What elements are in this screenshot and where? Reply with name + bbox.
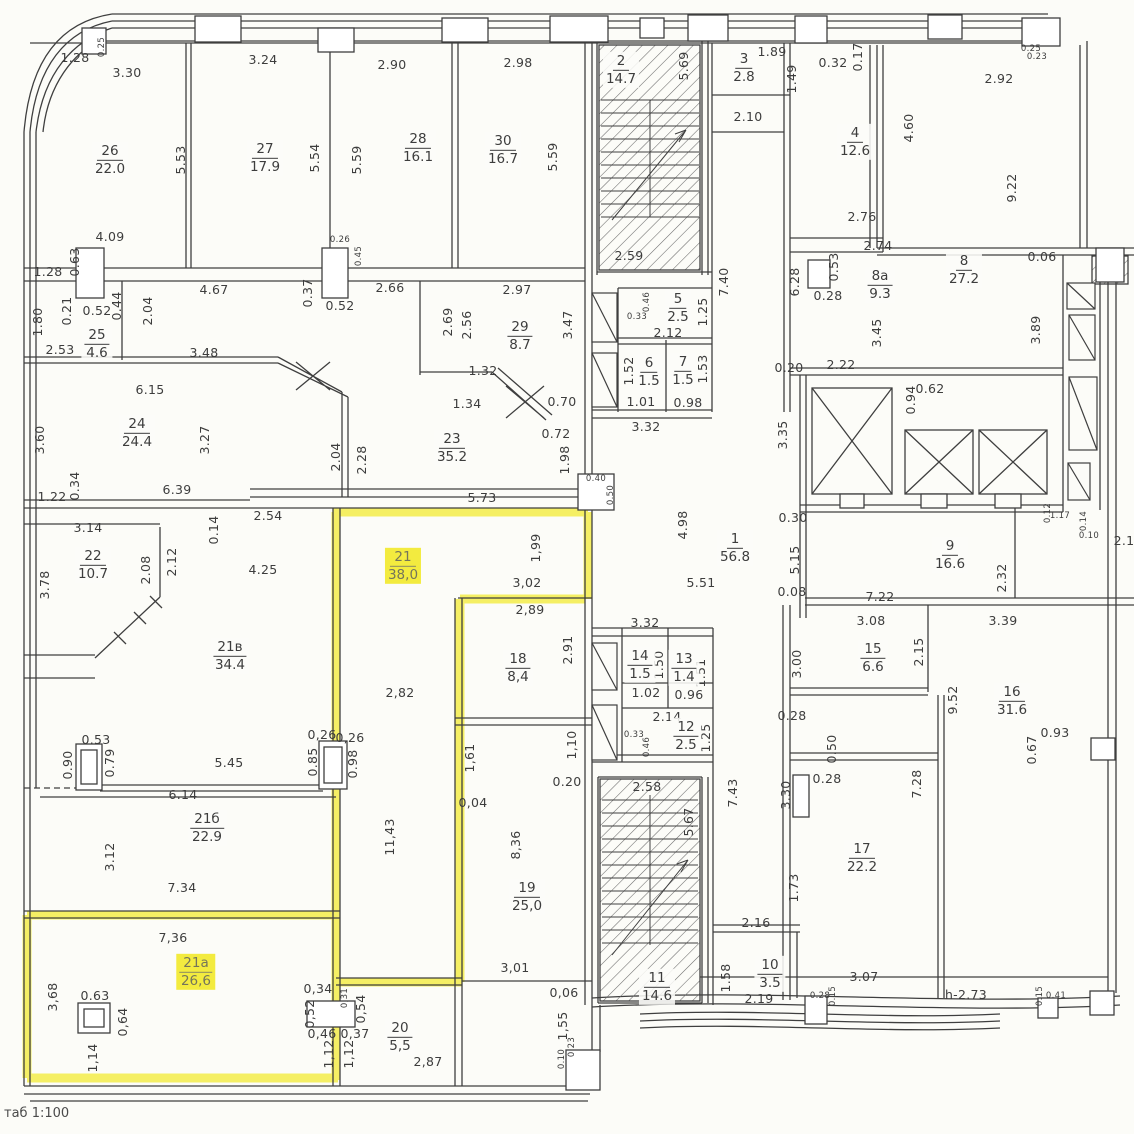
room-label-3: 32.8 [730,50,757,86]
dimension-label: 1,99 [530,533,543,562]
dimension-label: 3.08 [856,615,885,628]
dimension-label: 9.22 [1006,173,1019,202]
room-number: 21в [213,639,246,657]
dimension-label: 0,26 [335,732,364,745]
dimension-label: 0.10 [1079,532,1099,541]
dimension-label: 0.33 [627,313,647,322]
room-label-15: 156.6 [857,640,888,676]
room-number: 24 [124,416,149,434]
dimension-label: 0.21 [61,296,74,325]
dimension-label: 3.47 [562,310,575,339]
dimension-label: 0.14 [1080,511,1089,531]
dimension-label: 0.98 [673,397,702,410]
room-label-28: 2816.1 [400,130,436,166]
room-label-12: 122.5 [670,718,701,754]
room-label-7: 71.5 [669,353,696,389]
dimension-label: 1.53 [697,354,710,383]
dimension-label: 2.98 [503,57,532,70]
room-area: 31.6 [997,702,1027,718]
room-area: 22.9 [192,829,222,845]
dimension-label: 3.89 [1030,315,1043,344]
room-number: 26 [97,143,122,161]
room-label-21а: 21а26,6 [176,954,215,990]
dimension-label: 0.96 [674,689,703,702]
dimension-label: 0.93 [1040,727,1069,740]
dimension-label: 4.67 [199,284,228,297]
room-label-8: 827.2 [946,252,982,288]
room-area: 14.7 [606,71,636,87]
dimension-label: 1.34 [452,398,481,411]
room-number: 25 [84,327,109,345]
dimension-label: 1.98 [559,445,572,474]
dimension-label: 0.53 [828,252,841,281]
dimension-label: 1.58 [720,963,733,992]
room-area: 16.1 [403,149,433,165]
room-area: 27.2 [949,271,979,287]
dimension-label: 9.52 [947,685,960,714]
room-label-16: 1631.6 [994,683,1030,719]
label-layer: 1.280.253.303.242.902.985.535.545.595.59… [0,0,1134,1134]
dimension-label: 3.32 [630,617,659,630]
dimension-label: 0.72 [541,428,570,441]
dimension-label: 1.49 [786,64,799,93]
dimension-label: 2.08 [140,555,153,584]
dimension-label: 0.17 [852,42,865,71]
dimension-label: 2.66 [375,282,404,295]
room-label-2: 214.7 [603,52,639,88]
dimension-label: 2.92 [984,73,1013,86]
dimension-label: 0.52 [82,305,111,318]
room-label-19: 1925,0 [509,879,545,915]
room-area: 14.6 [642,988,672,1004]
dimension-label: 1.17 [1050,512,1070,521]
dimension-label: 1.52 [623,356,636,385]
dimension-label: 0.23 [568,1037,577,1057]
room-label-27: 2717.9 [247,140,283,176]
dimension-label: 2.10 [733,111,762,124]
room-area: 1.5 [672,372,693,388]
room-label-29: 298.7 [504,318,535,354]
room-label-11: 1114.6 [639,969,675,1005]
dimension-label: 0,46 [307,1028,336,1041]
room-number: 21б [190,811,224,829]
dimension-label: 1,10 [566,730,579,759]
dimension-label: 0.25 [98,37,107,57]
dimension-label: 0.52 [325,300,354,313]
dimension-label: 3.24 [248,54,277,67]
room-area: 10.7 [78,566,108,582]
room-label-1: 156.8 [717,530,753,566]
room-area: 6.6 [862,659,883,675]
dimension-label: 5.69 [678,51,691,80]
room-area: 22.2 [847,859,877,875]
room-number: 1 [727,531,744,549]
dimension-label: 3.30 [112,67,141,80]
dimension-label: 1.22 [37,491,66,504]
dimension-label: 0.28 [812,773,841,786]
dimension-label: 1.28 [60,52,89,65]
dimension-label: 0,06 [549,987,578,1000]
dimension-label: 0.67 [1026,735,1039,764]
room-area: 8.7 [509,337,530,353]
room-label-14: 141.5 [624,647,655,683]
dimension-label: 5.51 [686,577,715,590]
room-number: 16 [999,684,1024,702]
dimension-label: 3.32 [631,421,660,434]
dimension-label: 5.54 [309,143,322,172]
dimension-label: 0.06 [1027,251,1056,264]
dimension-label: 8,36 [510,830,523,859]
room-label-20: 205,5 [384,1019,415,1055]
room-number: 3 [736,51,753,69]
dimension-label: 3.45 [871,318,884,347]
room-label-26: 2622.0 [92,142,128,178]
dimension-label: 6.15 [135,384,164,397]
room-number: 4 [847,125,864,143]
dimension-label: 5.73 [467,492,496,505]
dimension-label: 3.14 [73,522,102,535]
dimension-label: 0.53 [81,734,110,747]
dimension-label: 2.1 [1114,535,1134,548]
dimension-label: 0.20 [774,362,803,375]
dimension-label: 0.94 [905,385,918,414]
dimension-label: 5.15 [789,545,802,574]
room-label-30: 3016.7 [485,132,521,168]
dimension-label: 6.39 [162,484,191,497]
dimension-label: 3,02 [512,577,541,590]
dimension-label: 7.43 [727,778,740,807]
floor-plan-page: 1.280.253.303.242.902.985.535.545.595.59… [0,0,1134,1134]
dimension-label: 0,04 [458,797,487,810]
room-area: 8,4 [507,669,528,685]
room-area: 9.3 [869,286,890,302]
dimension-label: 2.59 [614,250,643,263]
dimension-label: 0.30 [778,512,807,525]
dimension-label: 2,87 [413,1056,442,1069]
dimension-label: 3.48 [189,347,218,360]
dimension-label: 3,68 [47,982,60,1011]
room-area: 16.6 [935,556,965,572]
dimension-label: 3.27 [199,425,212,454]
dimension-label: 2,82 [385,687,414,700]
room-area: 3.5 [759,975,780,991]
dimension-label: 2.16 [741,917,770,930]
room-label-17: 1722.2 [844,840,880,876]
dimension-label: 0,52 [304,999,317,1028]
dimension-label: 2.28 [356,445,369,474]
dimension-label: 2.04 [330,442,343,471]
dimension-label: 3.30 [780,780,793,809]
dimension-label: 2.69 [442,307,455,336]
room-area: 26,6 [181,973,211,989]
room-label-21: 2138,0 [385,548,421,584]
dimension-label: 2.15 [913,637,926,666]
room-label-13: 131.4 [668,650,699,686]
dimension-label: 7.34 [167,882,196,895]
dimension-label: 0.40 [586,475,606,484]
dimension-label: 1.25 [697,297,710,326]
room-number: 27 [252,141,277,159]
room-number: 6 [641,355,658,373]
dimension-label: 3.60 [34,425,47,454]
room-label-22: 2210.7 [75,547,111,583]
room-number: 30 [490,133,515,151]
dimension-label: 2.04 [142,296,155,325]
dimension-label: 3.78 [39,570,52,599]
dimension-label: 2.53 [45,344,74,357]
dimension-label: 2.19 [744,993,773,1006]
dimension-label: 0.26 [330,236,350,245]
dimension-label: 0.28 [813,290,842,303]
room-label-8а: 8а9.3 [865,267,896,303]
dimension-label: 0.70 [547,396,576,409]
room-number: 8а [868,268,893,286]
room-number: 29 [507,319,532,337]
dimension-label: 2.56 [461,310,474,339]
room-area: 1.5 [629,666,650,682]
dimension-label: 5.53 [175,145,188,174]
room-number: 22 [80,548,105,566]
dimension-label: 7.22 [865,591,894,604]
dimension-label: 0.20 [552,776,581,789]
dimension-label: 2.12 [166,547,179,576]
room-area: 38,0 [388,567,418,583]
room-number: 19 [514,880,539,898]
dimension-label: 2.12 [653,327,682,340]
room-area: 1.5 [638,373,659,389]
dimension-label: 1.80 [32,307,45,336]
dimension-label: 1.73 [788,873,801,902]
dimension-label: 4.09 [95,231,124,244]
dimension-label: 6.14 [168,789,197,802]
dimension-label: 2.90 [377,59,406,72]
dimension-label: 0.50 [607,485,616,505]
room-number: 9 [942,538,959,556]
dimension-label: 4.60 [903,113,916,142]
dimension-label: 0.45 [355,246,364,266]
room-label-5: 52.5 [664,290,691,326]
dimension-label: 0.44 [111,291,124,320]
room-area: 2.5 [675,737,696,753]
dimension-label: 1,61 [464,743,477,772]
room-number: 12 [673,719,698,737]
room-number: 8 [956,253,973,271]
room-label-6: 61.5 [635,354,662,390]
dimension-label: 0.23 [1027,53,1047,62]
dimension-label: 2.22 [826,359,855,372]
dimension-label: 1.32 [468,365,497,378]
dimension-label: 0.15 [1036,986,1045,1006]
dimension-label: 0.37 [302,278,315,307]
dimension-label: 4.25 [248,564,277,577]
dimension-label: 7.28 [911,769,924,798]
dimension-label: 0.10 [558,1049,567,1069]
room-number: 7 [675,354,692,372]
room-area: 1.4 [673,669,694,685]
dimension-label: 5.59 [351,145,364,174]
dimension-label: 0.34 [69,471,82,500]
dimension-label: 0.28 [777,710,806,723]
dimension-label: 11,43 [384,818,397,855]
dimension-label: 0,54 [355,994,368,1023]
dimension-label: 2.32 [996,563,1009,592]
dimension-label: 2.97 [502,284,531,297]
room-area: 5,5 [389,1038,410,1054]
room-area: 22.0 [95,161,125,177]
dimension-label: 1.28 [33,266,62,279]
room-area: 17.9 [250,159,280,175]
dimension-label: 2.54 [253,510,282,523]
dimension-label: 2.91 [562,635,575,664]
dimension-label: 0.08 [777,586,806,599]
room-number: 15 [860,641,885,659]
room-number: 5 [670,291,687,309]
dimension-label: 4.98 [677,510,690,539]
room-area: 25,0 [512,898,542,914]
dimension-label: 2.76 [847,211,876,224]
dimension-label: 0,26 [307,729,336,742]
dimension-label: 7,36 [158,932,187,945]
dimension-label: 0.79 [104,748,117,777]
dimension-label: 5.67 [683,807,696,836]
room-number: 23 [439,431,464,449]
room-number: 13 [671,651,696,669]
room-number: 28 [405,131,430,149]
dimension-label: 0.85 [307,747,320,776]
dimension-label: 0,64 [117,1007,130,1036]
dimension-label: 0.14 [208,515,221,544]
room-area: 35.2 [437,449,467,465]
room-area: 12.6 [840,143,870,159]
dimension-label: 7.40 [718,267,731,296]
dimension-label: 0,37 [340,1028,369,1041]
room-number: 17 [849,841,874,859]
dimension-label: 6.28 [789,267,802,296]
dimension-label: 1.02 [631,687,660,700]
room-number: 14 [627,648,652,666]
dimension-label: 1.01 [626,396,655,409]
room-area: 16.7 [488,151,518,167]
dimension-label: 3.00 [791,649,804,678]
dimension-label: 3,01 [500,962,529,975]
dimension-label: 0.63 [80,990,109,1003]
dimension-label: 3.12 [104,842,117,871]
dimension-label: 3.35 [777,420,790,449]
room-number: 10 [757,957,782,975]
room-area: 2.8 [733,69,754,85]
room-number: 2 [613,53,630,71]
dimension-label: 0.50 [826,734,839,763]
room-label-10: 103.5 [754,956,785,992]
room-area: 34.4 [215,657,245,673]
room-area: 56.8 [720,549,750,565]
dimension-label: 0,34 [303,983,332,996]
room-label-9: 916.6 [932,537,968,573]
dimension-label: 2,89 [515,604,544,617]
room-area: 24.4 [122,434,152,450]
dimension-label: h-2.73 [945,989,987,1002]
dimension-label: 1,12 [323,1039,336,1068]
room-label-21в: 21в34.4 [210,638,249,674]
room-area: 2.5 [667,309,688,325]
dimension-label: 5.59 [547,142,560,171]
scale-note: таб 1:100 [4,1106,69,1121]
room-number: 21 [390,549,415,567]
room-label-21б: 21б22.9 [187,810,227,846]
room-label-18: 188,4 [502,650,533,686]
dimension-label: 3.39 [988,615,1017,628]
dimension-label: 0,31 [341,988,350,1008]
dimension-label: 1,12 [343,1039,356,1068]
dimension-label: 0.41 [1046,992,1066,1001]
dimension-label: 0.46 [643,292,652,312]
dimension-label: 0.63 [69,247,82,276]
dimension-label: 0.98 [347,749,360,778]
room-area: 4.6 [86,345,107,361]
dimension-label: 1.89 [757,46,786,59]
dimension-label: 0.32 [818,57,847,70]
dimension-label: 2.58 [632,781,661,794]
dimension-label: 2.74 [863,240,892,253]
dimension-label: 0.62 [915,383,944,396]
dimension-label: 3.07 [849,971,878,984]
room-label-4: 412.6 [837,124,873,160]
dimension-label: 5.45 [214,757,243,770]
room-label-25: 254.6 [81,326,112,362]
dimension-label: 0.90 [62,750,75,779]
dimension-label: 1,14 [87,1043,100,1072]
room-label-24: 2424.4 [119,415,155,451]
dimension-label: 0.46 [643,737,652,757]
room-number: 20 [387,1020,412,1038]
room-number: 11 [644,970,669,988]
room-number: 18 [505,651,530,669]
room-label-23: 2335.2 [434,430,470,466]
dimension-label: 1.25 [700,723,713,752]
room-number: 21а [179,955,212,973]
dimension-label: 0.15 [829,986,838,1006]
